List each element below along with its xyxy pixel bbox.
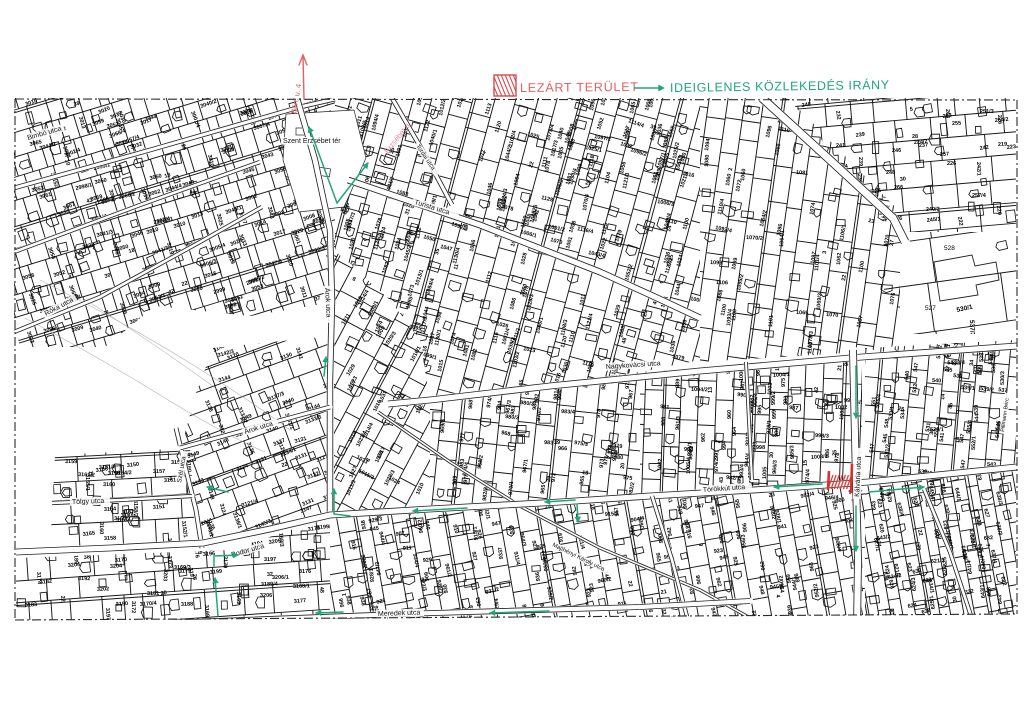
svg-text:969: 969 <box>452 476 459 486</box>
svg-text:Szent Erzsébet tér: Szent Erzsébet tér <box>283 138 341 145</box>
svg-text:993: 993 <box>752 442 758 451</box>
svg-text:3157: 3157 <box>121 512 134 519</box>
svg-text:959: 959 <box>786 574 793 584</box>
svg-text:540: 540 <box>904 370 911 380</box>
svg-text:42: 42 <box>814 387 820 393</box>
svg-text:548: 548 <box>989 350 996 360</box>
svg-text:3177: 3177 <box>294 598 307 605</box>
svg-text:241: 241 <box>836 143 845 149</box>
svg-text:246: 246 <box>892 148 901 154</box>
svg-text:2: 2 <box>728 168 734 172</box>
svg-text:975: 975 <box>781 378 787 387</box>
svg-text:983: 983 <box>544 440 553 446</box>
svg-text:3189/4: 3189/4 <box>261 581 279 588</box>
svg-text:39: 39 <box>554 440 560 446</box>
svg-text:3: 3 <box>169 476 172 482</box>
svg-text:539/1: 539/1 <box>961 385 975 392</box>
svg-text:967: 967 <box>628 389 635 399</box>
svg-text:970/1: 970/1 <box>508 481 515 495</box>
svg-text:901: 901 <box>682 499 689 509</box>
svg-text:974/2: 974/2 <box>714 458 720 472</box>
svg-text:3206/1: 3206/1 <box>272 575 289 581</box>
svg-text:223: 223 <box>1007 144 1017 151</box>
svg-text:986: 986 <box>774 428 780 437</box>
svg-text:532: 532 <box>912 383 919 393</box>
svg-text:1065: 1065 <box>796 310 808 316</box>
svg-text:624/3: 624/3 <box>911 577 918 591</box>
svg-text:527: 527 <box>925 305 936 312</box>
svg-text:985/3: 985/3 <box>789 445 796 459</box>
svg-text:22: 22 <box>59 595 66 602</box>
svg-text:3150: 3150 <box>127 462 140 469</box>
svg-text:540: 540 <box>932 378 941 384</box>
svg-text:1005: 1005 <box>762 467 768 479</box>
svg-text:538: 538 <box>979 353 985 362</box>
svg-text:622: 622 <box>942 566 949 576</box>
svg-text:960: 960 <box>727 410 733 419</box>
svg-text:547: 547 <box>913 362 920 372</box>
svg-text:1062: 1062 <box>836 252 843 265</box>
svg-text:936: 936 <box>535 572 542 582</box>
svg-text:998/3: 998/3 <box>815 433 829 440</box>
svg-text:Meredek utca: Meredek utca <box>378 610 421 618</box>
svg-text:3181: 3181 <box>147 591 159 597</box>
svg-text:30: 30 <box>900 176 907 183</box>
svg-text:966/3: 966/3 <box>772 460 779 474</box>
svg-text:962: 962 <box>701 433 707 442</box>
svg-text:266: 266 <box>894 185 903 191</box>
svg-text:1009: 1009 <box>839 407 846 420</box>
svg-text:255: 255 <box>952 121 961 127</box>
svg-text:3183: 3183 <box>25 602 38 609</box>
svg-text:919: 919 <box>558 533 565 543</box>
svg-text:3202: 3202 <box>97 586 110 593</box>
svg-text:21: 21 <box>660 589 667 596</box>
svg-text:998/1: 998/1 <box>687 442 693 456</box>
svg-text:45: 45 <box>948 403 955 410</box>
svg-text:530: 530 <box>991 364 997 373</box>
svg-text:219: 219 <box>998 142 1007 148</box>
svg-text:13: 13 <box>708 387 714 393</box>
svg-text:3159: 3159 <box>65 459 77 465</box>
svg-text:LEZÁRT TERÜLET: LEZÁRT TERÜLET <box>520 79 639 95</box>
svg-text:974: 974 <box>607 443 614 454</box>
svg-text:30: 30 <box>929 429 936 436</box>
svg-text:923: 923 <box>714 548 724 555</box>
svg-text:961/3: 961/3 <box>675 416 682 430</box>
svg-text:978: 978 <box>596 409 603 419</box>
svg-text:1002: 1002 <box>657 459 664 472</box>
svg-text:547: 547 <box>869 443 876 453</box>
svg-text:947: 947 <box>695 503 705 510</box>
svg-text:928/1: 928/1 <box>369 568 376 582</box>
svg-text:3176: 3176 <box>299 569 311 575</box>
svg-text:257: 257 <box>940 152 949 158</box>
svg-text:1081: 1081 <box>796 170 808 176</box>
svg-text:966: 966 <box>558 446 567 452</box>
svg-text:962: 962 <box>760 561 767 571</box>
svg-text:3188: 3188 <box>181 602 193 608</box>
svg-text:3197: 3197 <box>104 608 111 621</box>
svg-text:945: 945 <box>369 526 379 533</box>
svg-text:979: 979 <box>613 443 623 450</box>
svg-text:3157: 3157 <box>153 469 165 475</box>
svg-text:1070: 1070 <box>826 312 839 319</box>
svg-text:48: 48 <box>318 587 325 594</box>
svg-text:3160: 3160 <box>98 522 104 534</box>
svg-text:986: 986 <box>825 449 831 458</box>
svg-text:257/4: 257/4 <box>972 193 987 199</box>
svg-text:981: 981 <box>660 404 670 411</box>
svg-text:539: 539 <box>974 405 980 414</box>
svg-text:3: 3 <box>822 251 828 254</box>
svg-text:21: 21 <box>837 365 844 372</box>
svg-text:955: 955 <box>735 499 742 509</box>
svg-text:3173: 3173 <box>166 556 173 569</box>
svg-text:989: 989 <box>675 379 681 388</box>
svg-text:643: 643 <box>997 595 1004 605</box>
svg-text:933: 933 <box>498 550 505 560</box>
svg-text:20: 20 <box>620 463 626 470</box>
svg-text:3204: 3204 <box>68 562 82 569</box>
svg-text:538/4: 538/4 <box>951 360 966 366</box>
svg-text:528: 528 <box>944 245 955 252</box>
svg-text:539: 539 <box>953 373 963 380</box>
svg-text:30: 30 <box>769 452 775 458</box>
svg-text:627: 627 <box>916 541 923 551</box>
svg-text:23: 23 <box>868 218 875 225</box>
svg-text:3158: 3158 <box>104 536 116 542</box>
svg-text:965/4: 965/4 <box>753 392 759 407</box>
svg-text:Tölgy utca: Tölgy utca <box>72 498 105 506</box>
svg-text:3172: 3172 <box>130 601 136 613</box>
svg-text:990: 990 <box>737 392 747 399</box>
svg-text:30: 30 <box>952 596 959 603</box>
svg-text:984: 984 <box>497 400 504 410</box>
svg-text:237: 237 <box>919 143 928 149</box>
svg-text:251/3: 251/3 <box>980 109 994 115</box>
svg-text:IDEIGLENES KÖZLEKEDÉS IRÁNY: IDEIGLENES KÖZLEKEDÉS IRÁNY <box>670 77 890 95</box>
svg-text:957: 957 <box>367 588 374 598</box>
svg-text:965: 965 <box>540 484 547 494</box>
svg-text:534: 534 <box>900 409 907 420</box>
svg-text:983: 983 <box>783 396 789 405</box>
svg-text:3190: 3190 <box>116 601 129 608</box>
svg-text:242/1: 242/1 <box>975 162 981 176</box>
svg-text:911: 911 <box>403 545 412 552</box>
svg-text:3204: 3204 <box>110 563 123 570</box>
svg-text:999/2: 999/2 <box>771 391 777 405</box>
svg-text:999: 999 <box>772 410 778 419</box>
svg-text:923: 923 <box>586 588 593 598</box>
svg-text:3192: 3192 <box>78 576 90 582</box>
svg-text:3168/1: 3168/1 <box>293 583 310 590</box>
svg-text:22: 22 <box>841 274 848 281</box>
svg-text:991: 991 <box>714 450 720 459</box>
svg-text:994: 994 <box>722 440 728 450</box>
svg-text:15: 15 <box>803 460 809 466</box>
svg-text:3179: 3179 <box>222 556 228 568</box>
svg-text:964: 964 <box>732 426 738 436</box>
svg-text:3151: 3151 <box>153 504 166 511</box>
svg-text:3160: 3160 <box>103 482 115 488</box>
svg-text:988: 988 <box>661 417 667 426</box>
svg-text:1004/2: 1004/2 <box>691 387 708 393</box>
svg-text:20: 20 <box>160 590 167 597</box>
svg-text:541: 541 <box>939 432 946 442</box>
svg-text:240/2: 240/2 <box>926 207 940 213</box>
svg-text:1070/2: 1070/2 <box>746 235 763 242</box>
svg-text:552/1: 552/1 <box>971 436 977 450</box>
svg-text:1064/1: 1064/1 <box>779 230 786 247</box>
svg-text:32: 32 <box>369 605 376 612</box>
svg-text:32: 32 <box>267 572 274 578</box>
svg-text:248: 248 <box>886 170 895 176</box>
svg-text:43: 43 <box>719 477 725 483</box>
svg-text:3169: 3169 <box>203 605 210 618</box>
svg-text:3203: 3203 <box>162 569 168 581</box>
svg-text:3199: 3199 <box>210 569 223 576</box>
svg-text:970/2: 970/2 <box>536 407 543 421</box>
svg-text:239: 239 <box>857 157 863 166</box>
svg-text:621/3: 621/3 <box>931 558 945 565</box>
svg-text:1101: 1101 <box>768 315 775 327</box>
svg-text:982: 982 <box>534 394 540 403</box>
svg-text:978/1: 978/1 <box>766 420 773 434</box>
svg-text:548: 548 <box>884 418 891 428</box>
svg-text:974/4: 974/4 <box>805 468 812 483</box>
svg-text:632: 632 <box>984 535 994 542</box>
svg-text:950: 950 <box>630 526 637 536</box>
svg-text:969/3: 969/3 <box>440 419 447 433</box>
svg-text:1080: 1080 <box>704 155 711 168</box>
svg-text:3164: 3164 <box>104 506 117 513</box>
svg-text:29: 29 <box>546 475 553 482</box>
svg-text:975: 975 <box>623 475 633 482</box>
svg-text:929: 929 <box>423 557 433 564</box>
svg-text:973: 973 <box>599 459 606 469</box>
svg-text:3206: 3206 <box>260 593 272 599</box>
svg-text:982/1: 982/1 <box>726 475 740 482</box>
svg-text:3197: 3197 <box>264 557 276 563</box>
svg-text:1099: 1099 <box>710 260 722 266</box>
svg-text:906: 906 <box>742 523 749 533</box>
svg-text:18: 18 <box>582 470 589 477</box>
svg-text:23: 23 <box>768 492 775 499</box>
svg-text:226: 226 <box>947 161 956 167</box>
svg-text:220: 220 <box>995 206 1002 216</box>
svg-text:530/3: 530/3 <box>1000 371 1006 385</box>
svg-text:1106: 1106 <box>716 280 728 286</box>
svg-text:987: 987 <box>789 405 799 412</box>
svg-text:19: 19 <box>87 471 94 478</box>
svg-text:983/4: 983/4 <box>561 409 576 416</box>
svg-text:3158: 3158 <box>108 471 120 477</box>
svg-text:226: 226 <box>996 115 1003 125</box>
svg-text:3169: 3169 <box>235 592 241 604</box>
svg-text:22: 22 <box>626 580 633 587</box>
svg-text:980: 980 <box>614 455 623 461</box>
svg-text:550: 550 <box>977 365 983 374</box>
svg-text:638: 638 <box>986 587 993 597</box>
svg-text:25: 25 <box>832 450 838 457</box>
